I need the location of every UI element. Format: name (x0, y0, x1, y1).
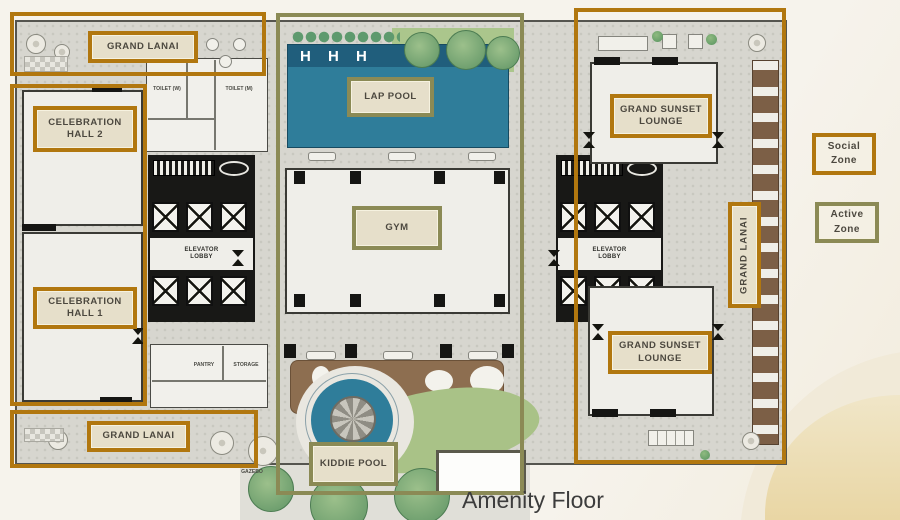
elevator-lobby-left-label: ELEVATOR LOBBY (179, 247, 225, 260)
label-text: GRAND LANAI (107, 41, 179, 53)
label-text: GYM (385, 222, 408, 234)
legend-active-label: Active Zone (821, 208, 873, 237)
room-label-gazebo: GAZEBO (235, 469, 269, 474)
label-text: GRAND SUNSET LOUNGE (616, 104, 706, 129)
label-grand-lanai-bottom: GRAND LANAI (87, 421, 190, 452)
room-label-toilet-w: TOILET (W) (151, 86, 183, 91)
room-label-toilet-m: TOILET (M) (219, 86, 258, 91)
elevator-icon (152, 202, 179, 232)
label-kiddie-pool: KIDDIE POOL (309, 442, 398, 486)
label-text: CELEBRATION HALL 2 (39, 117, 131, 142)
label-text: GRAND LANAI (738, 216, 750, 294)
label-gym: GYM (352, 206, 442, 250)
room-label-pantry: PANTRY (189, 362, 220, 367)
label-celebration-hall-2: CELEBRATION HALL 2 (33, 106, 137, 152)
elevator-icon (152, 276, 179, 306)
elevator-icon (220, 276, 247, 306)
label-lap-pool: LAP POOL (347, 77, 434, 117)
legend-social-label: Social Zone (818, 140, 870, 169)
stairs-icon (153, 160, 215, 176)
floor-plan-canvas: TOILET (W) TOILET (M) PANTRY STORAGE ELE… (0, 0, 900, 520)
label-text: GRAND LANAI (103, 430, 175, 442)
wall-partition (148, 118, 214, 120)
label-grand-sunset-lounge-top: GRAND SUNSET LOUNGE (610, 94, 712, 138)
elevator-icon (186, 202, 213, 232)
label-grand-lanai-right: GRAND LANAI (728, 202, 761, 308)
label-grand-lanai-top: GRAND LANAI (88, 31, 198, 63)
label-text: LAP POOL (364, 91, 416, 103)
wall-partition (152, 380, 266, 382)
label-celebration-hall-1: CELEBRATION HALL 1 (33, 287, 137, 329)
door-icon (548, 250, 560, 266)
elevator-icon (220, 202, 247, 232)
ramp-icon (219, 161, 249, 176)
legend-active-zone: Active Zone (815, 202, 879, 243)
legend-social-zone: Social Zone (812, 133, 876, 175)
door-icon (232, 250, 244, 266)
label-text: GRAND SUNSET LOUNGE (614, 340, 706, 365)
room-pantry-block (150, 344, 268, 408)
label-text: CELEBRATION HALL 1 (39, 296, 131, 321)
label-grand-sunset-lounge-bottom: GRAND SUNSET LOUNGE (608, 331, 712, 374)
wall-partition (222, 346, 224, 380)
elevator-icon (186, 276, 213, 306)
page-title: Amenity Floor (462, 487, 604, 514)
room-label-storage: STORAGE (229, 362, 263, 367)
label-text: KIDDIE POOL (320, 458, 387, 470)
